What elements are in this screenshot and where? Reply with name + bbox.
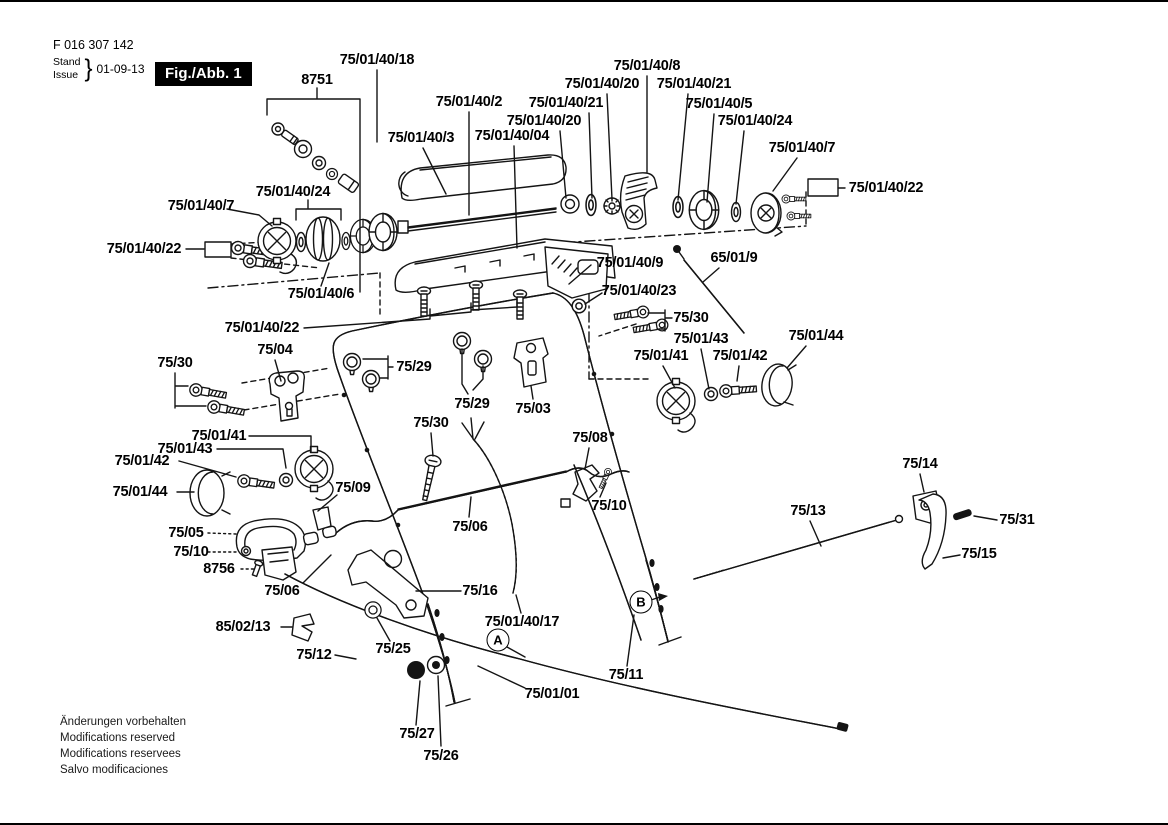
part-label-75-30-28: 75/30 (157, 356, 192, 371)
part-label-75-30-21: 75/30 (673, 311, 708, 326)
part-label-75-01-40-17-46: 75/01/40/17 (485, 615, 559, 630)
diagram-artwork (0, 2, 1168, 825)
part-label-75-01-41-23: 75/01/41 (634, 349, 689, 364)
stand-issue-label: Stand Issue (53, 56, 80, 81)
part-label-75-29-30: 75/29 (454, 397, 489, 412)
header: F 016 307 142 Stand Issue } 01-09-13 (53, 38, 145, 83)
part-label-75-06-44: 75/06 (452, 520, 487, 535)
part-label-75-15-57: 75/15 (961, 547, 996, 562)
part-label-75-01-40-7-12: 75/01/40/7 (769, 141, 836, 156)
part-label-75-01-40-24-14: 75/01/40/24 (256, 185, 330, 200)
leader-lines (175, 70, 997, 746)
part-label-75-01-40-3-3: 75/01/40/3 (388, 131, 455, 146)
part-label-75-16-45: 75/16 (462, 584, 497, 599)
part-label-75-01-42-24: 75/01/42 (713, 349, 768, 364)
view-marker-B: B (630, 591, 653, 614)
part-label-75-29-29: 75/29 (396, 360, 431, 375)
part-label-75-01-44-38: 75/01/44 (113, 485, 168, 500)
part-label-75-10-34: 75/10 (591, 499, 626, 514)
part-label-65-01-9-19: 65/01/9 (711, 251, 758, 266)
part-label-85-02-13-47: 85/02/13 (216, 620, 271, 635)
part-group-roller-and-tray (395, 155, 615, 319)
part-label-8751-0: 8751 (301, 73, 332, 88)
part-group-left-clamp (190, 447, 333, 517)
part-label-75-01-40-6-17: 75/01/40/6 (288, 287, 355, 302)
part-label-75-31-56: 75/31 (999, 513, 1034, 528)
part-label-75-01-43-22: 75/01/43 (674, 332, 729, 347)
document-number: F 016 307 142 (53, 38, 145, 52)
parts-diagram-page: F 016 307 142 Stand Issue } 01-09-13 Fig… (0, 0, 1168, 825)
part-group-8751 (272, 123, 359, 193)
part-label-75-10-41: 75/10 (173, 545, 208, 560)
part-label-75-01-40-20-7: 75/01/40/20 (565, 77, 639, 92)
part-label-8756-42: 8756 (203, 562, 234, 577)
part-label-75-01-44-25: 75/01/44 (789, 329, 844, 344)
part-label-75-01-40-2-2: 75/01/40/2 (436, 95, 503, 110)
part-label-75-01-42-37: 75/01/42 (115, 454, 170, 469)
part-label-75-12-48: 75/12 (296, 648, 331, 663)
part-label-75-30-32: 75/30 (413, 416, 448, 431)
disclaimer-line-es: Salvo modificaciones (60, 762, 186, 778)
part-label-75-01-40-22-26: 75/01/40/22 (225, 321, 299, 336)
part-label-75-27-51: 75/27 (399, 727, 434, 742)
part-label-75-01-40-21-6: 75/01/40/21 (529, 96, 603, 111)
part-label-75-08-33: 75/08 (572, 431, 607, 446)
disclaimer: Änderungen vorbehalten Modifications res… (60, 714, 186, 778)
part-label-75-01-40-21-9: 75/01/40/21 (657, 77, 731, 92)
part-label-75-01-40-22-16: 75/01/40/22 (107, 242, 181, 257)
part-label-75-01-40-18-1: 75/01/40/18 (340, 53, 414, 68)
issue-date: 01-09-13 (96, 62, 144, 76)
part-label-75-01-40-7-15: 75/01/40/7 (168, 199, 235, 214)
part-pivot-bracket-75-04 (269, 371, 304, 421)
view-marker-A: A (487, 629, 510, 652)
part-label-75-01-40-20-5: 75/01/40/20 (507, 114, 581, 129)
brace-glyph: } (84, 54, 92, 83)
part-label-75-01-40-23-20: 75/01/40/23 (602, 284, 676, 299)
part-label-75-25-49: 75/25 (375, 642, 410, 657)
part-group-left-roller-assembly (205, 214, 397, 274)
part-label-75-26-52: 75/26 (423, 749, 458, 764)
part-group-right-clamp (657, 362, 796, 432)
part-label-75-14-55: 75/14 (902, 457, 937, 472)
part-label-75-01-40-8-8: 75/01/40/8 (614, 59, 681, 74)
part-label-75-01-40-9-18: 75/01/40/9 (597, 256, 664, 271)
part-label-75-04-27: 75/04 (257, 343, 292, 358)
part-label-75-13-54: 75/13 (790, 504, 825, 519)
part-label-75-11-53: 75/11 (609, 668, 644, 683)
part-label-75-01-40-5-10: 75/01/40/5 (686, 97, 753, 112)
part-label-75-05-40: 75/05 (168, 526, 203, 541)
part-label-75-01-40-22-13: 75/01/40/22 (849, 181, 923, 196)
disclaimer-line-de: Änderungen vorbehalten (60, 714, 186, 730)
part-latch-75-03 (514, 338, 548, 387)
disclaimer-line-fr: Modifications reservees (60, 746, 186, 762)
part-label-75-01-40-04-4: 75/01/40/04 (475, 129, 549, 144)
part-label-75-01-01-50: 75/01/01 (525, 687, 580, 702)
part-label-75-03-31: 75/03 (515, 402, 550, 417)
disclaimer-line-en: Modifications reserved (60, 730, 186, 746)
part-label-75-06-43: 75/06 (264, 584, 299, 599)
figure-badge: Fig./Abb. 1 (155, 62, 252, 86)
part-label-75-01-40-24-11: 75/01/40/24 (718, 114, 792, 129)
part-group-right-hub-stack (561, 173, 838, 236)
part-label-75-09-39: 75/09 (335, 481, 370, 496)
